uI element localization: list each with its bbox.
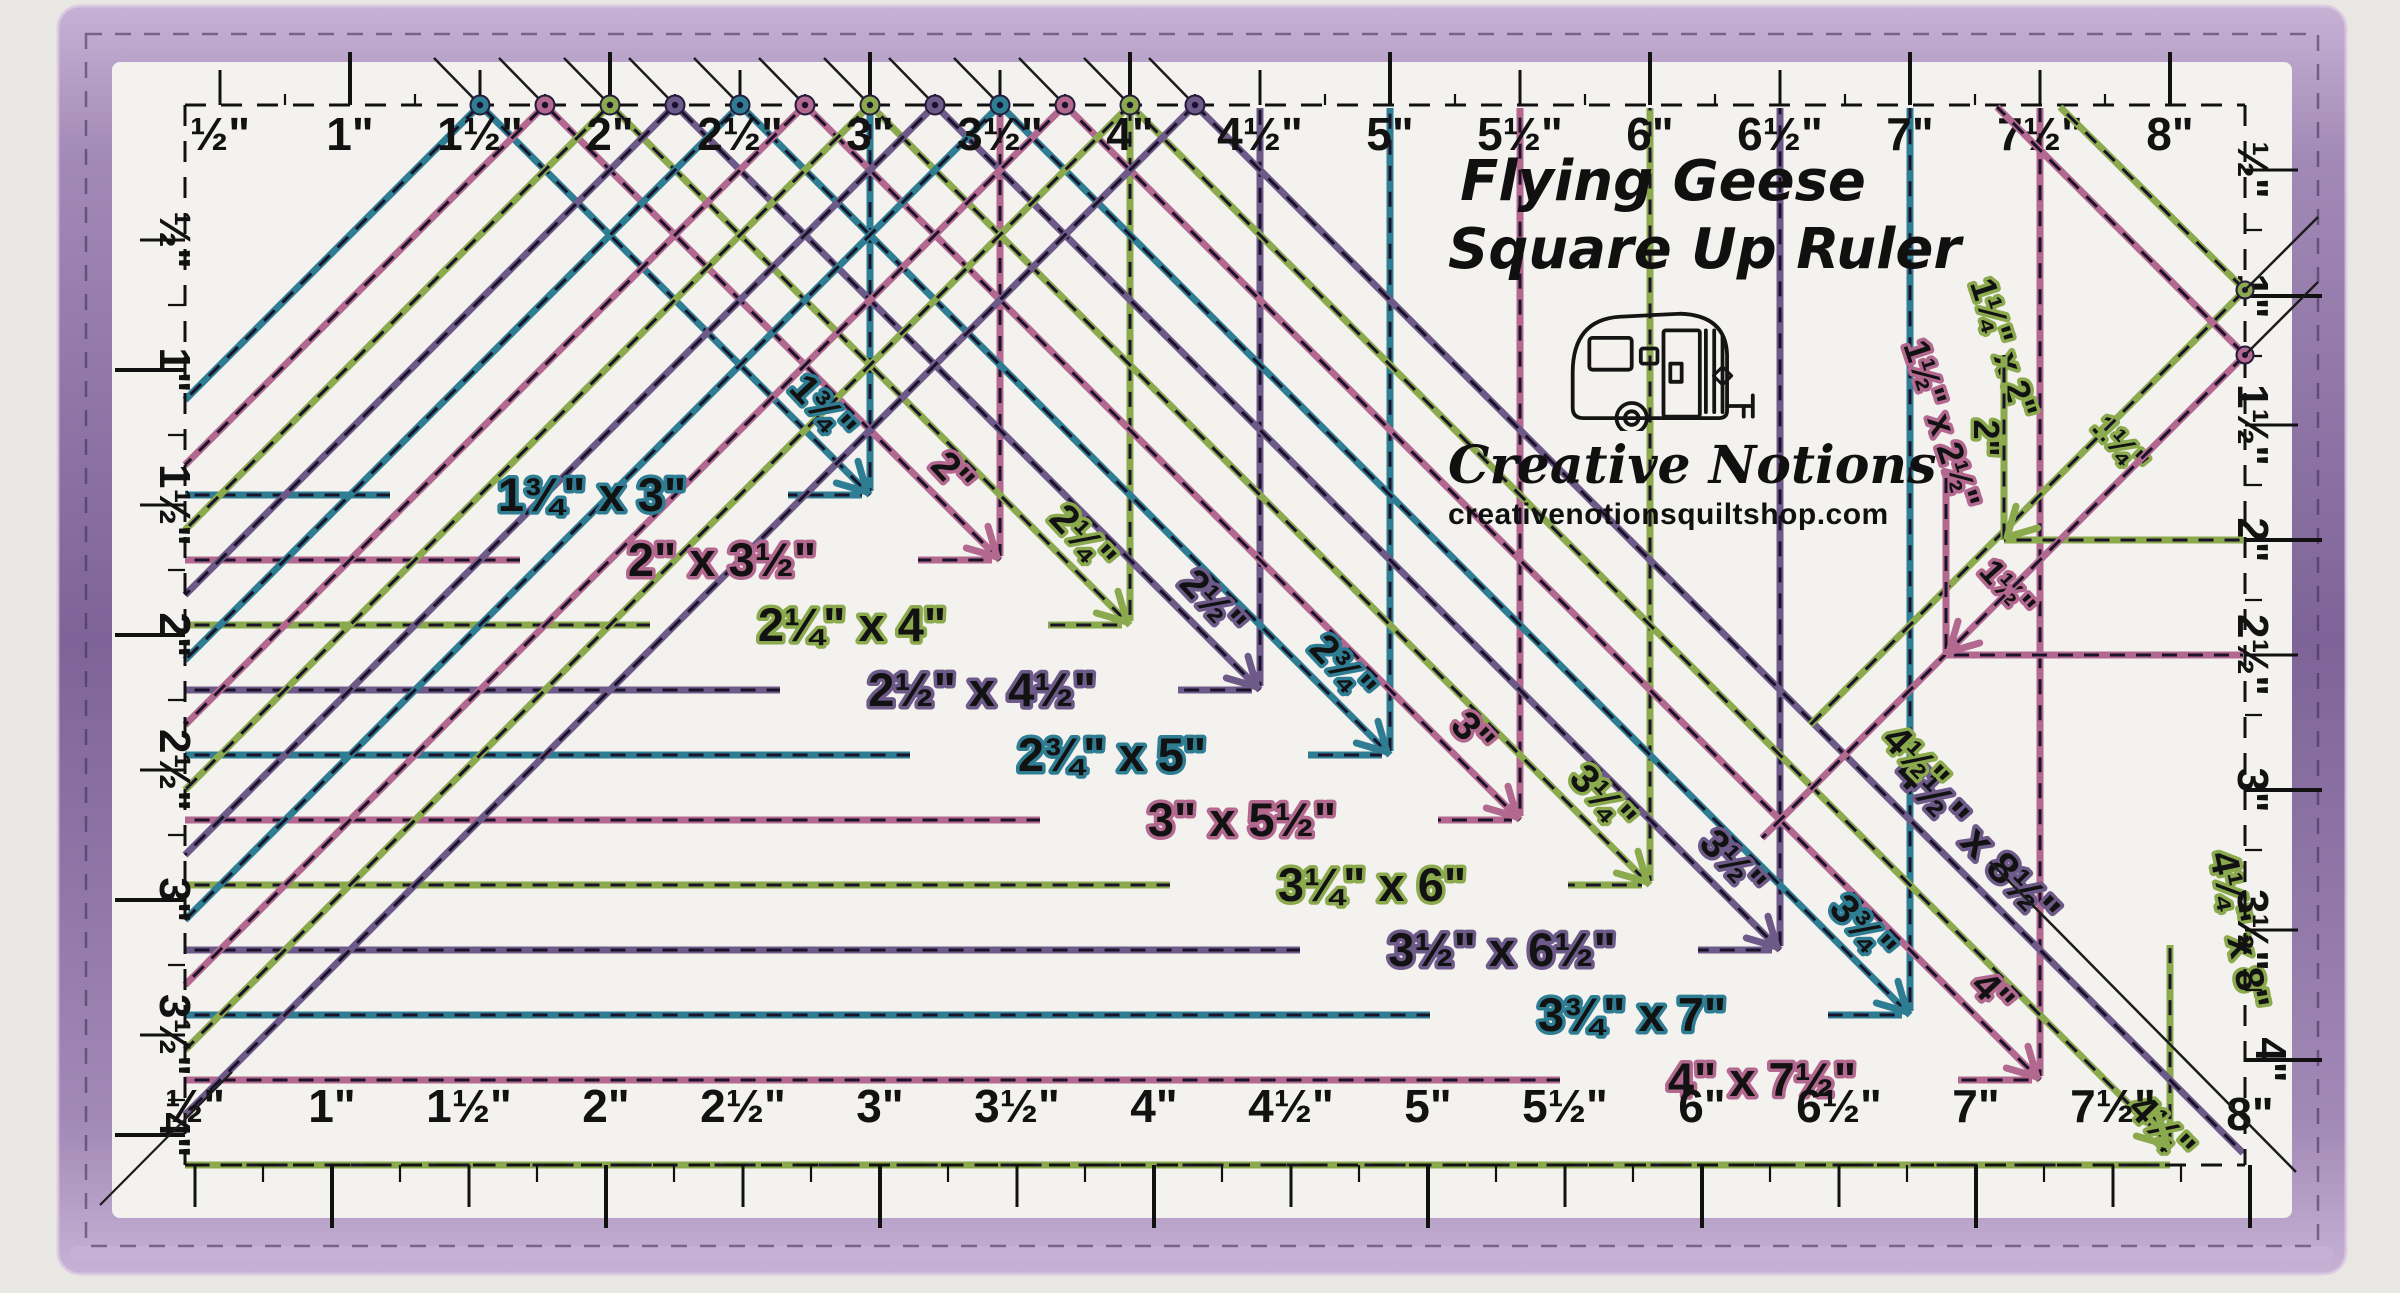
ruler-text: ½" — [190, 108, 250, 160]
ruler-text: 2½" — [697, 108, 783, 160]
ruler-text: 3" — [856, 1080, 903, 1132]
ruler-text: 4½" — [1217, 108, 1303, 160]
ruler-text: 1½" — [426, 1080, 512, 1132]
ruler-text: 3¼" x 6" — [1278, 858, 1466, 911]
ruler-text: 1" — [308, 1080, 355, 1132]
ruler-text: 2½" — [700, 1080, 786, 1132]
ruler-text: 2" — [582, 1080, 629, 1132]
ruler-text: 7½" — [2070, 1080, 2156, 1132]
ruler-text: 2" x 3½" — [628, 533, 816, 586]
product-title-line1: Flying Geese — [1448, 148, 1878, 216]
brand-website: creativenotionsquiltshop.com — [1448, 498, 1878, 532]
ruler-text: 6½" — [1796, 1080, 1882, 1132]
ruler-text: 3½" — [957, 108, 1043, 160]
flying-geese-ruler: 1¾" x 3"1¾"2" x 3½"2"2¼" x 4"2¼"2½" x 4½… — [0, 0, 2400, 1293]
photo-of-quilting-ruler: 1¾" x 3"1¾"2" x 3½"2"2¼" x 4"2¼"2½" x 4½… — [0, 0, 2400, 1293]
ruler-text: 3" x 5½" — [1148, 793, 1336, 846]
ruler-text: 7" — [1952, 1080, 1999, 1132]
ruler-text: 3¾" x 7" — [1538, 988, 1726, 1041]
ruler-text: 4" — [1106, 108, 1153, 160]
ruler-text: 5" — [1366, 108, 1413, 160]
ruler-text: 3½" — [974, 1080, 1060, 1132]
title-block: Flying Geese Square Up Ruler Creative No… — [1448, 148, 1878, 532]
ruler-text: 2½" x 4½" — [868, 663, 1096, 716]
camper-trailer-icon — [1561, 291, 1766, 431]
ruler-text: 5" — [1404, 1080, 1451, 1132]
ruler-text: 1¾" x 3" — [498, 468, 686, 521]
ruler-text: 2¾" x 5" — [1018, 728, 1206, 781]
ruler-text: 5½" — [1522, 1080, 1608, 1132]
ruler-text: 8" — [2146, 108, 2193, 160]
ruler-text: 1" — [326, 108, 373, 160]
ruler-text: 6" — [1678, 1080, 1725, 1132]
ruler-text: 3" — [846, 108, 893, 160]
ruler-text: 8" — [2226, 1088, 2273, 1140]
ruler-text: 2¼" x 4" — [758, 598, 946, 651]
ruler-text: 1½" — [437, 108, 523, 160]
product-title-line2: Square Up Ruler — [1448, 216, 1878, 284]
brand-name: Creative Notions — [1448, 435, 1878, 496]
ruler-text: 3½" x 6½" — [1388, 923, 1616, 976]
ruler-text: 4½" — [1248, 1080, 1334, 1132]
ruler-text: 7" — [1886, 108, 1933, 160]
ruler-text: 4" — [1130, 1080, 1177, 1132]
ruler-text: 2" — [586, 108, 633, 160]
